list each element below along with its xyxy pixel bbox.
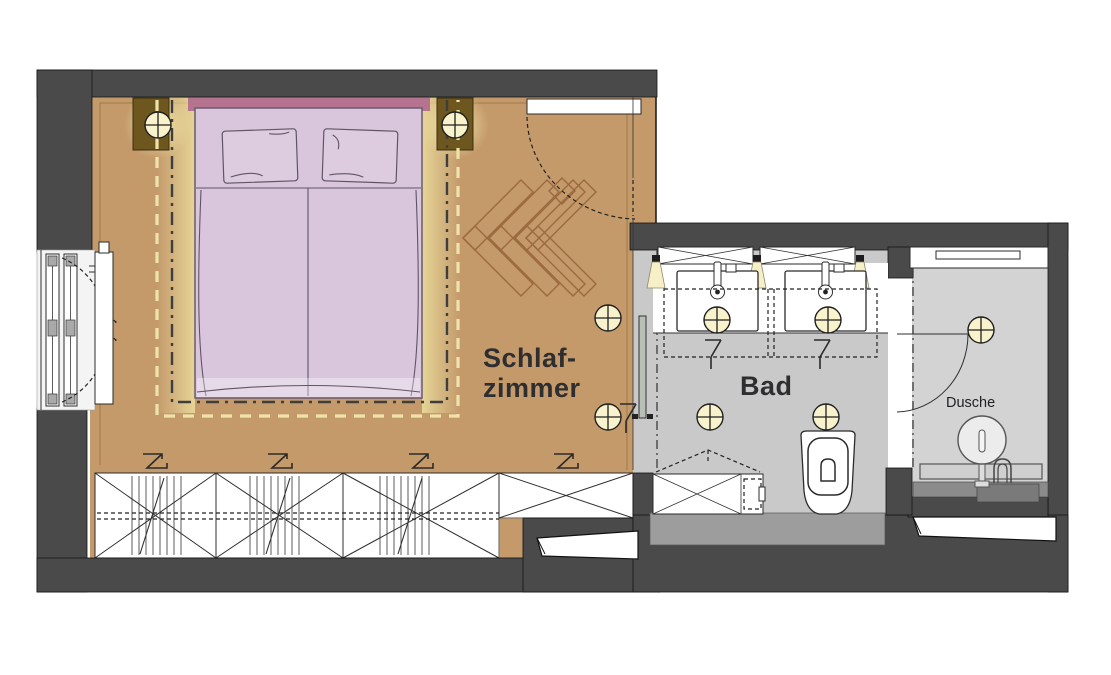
window-sash [46, 254, 59, 406]
ceiling-light-icon [704, 307, 730, 333]
wall-segment-top [37, 70, 657, 97]
pillow-left [222, 129, 298, 184]
pillow-right [322, 129, 398, 184]
ceiling-light-icon [968, 317, 994, 343]
wall-stub-toilet-shower [886, 468, 912, 515]
wall-stub-vanity-shower [888, 247, 913, 278]
window-sash [64, 254, 77, 406]
bedroom-door-leaf [527, 99, 641, 114]
ceiling-light-icon [697, 404, 723, 430]
wall-segment-left-upper [37, 70, 92, 252]
floor-plan: Schlaf- zimmer Bad Dusche [0, 0, 1111, 675]
floor-plan-drawing [0, 0, 1111, 675]
ceiling-light-icon [442, 112, 468, 138]
wall-segment-bathroom-top [630, 223, 1068, 250]
bedroom-label: Schlaf- zimmer [483, 343, 581, 403]
toilet-plinth [650, 513, 885, 545]
toilet [801, 431, 855, 514]
mirror-cabinet-right [760, 247, 855, 264]
bathroom-label: Bad [740, 371, 793, 401]
mirror-cabinet-left [658, 247, 753, 264]
ceiling-light-icon [595, 305, 621, 331]
bed [188, 97, 430, 398]
wardrobe-side-panel [499, 518, 523, 558]
ceiling-light-icon [815, 307, 841, 333]
shower-label: Dusche [946, 395, 995, 411]
ceiling-light-icon [145, 112, 171, 138]
shower-niche [910, 247, 1048, 268]
ceiling-light-icon [595, 404, 621, 430]
ceiling-light-icon [813, 404, 839, 430]
